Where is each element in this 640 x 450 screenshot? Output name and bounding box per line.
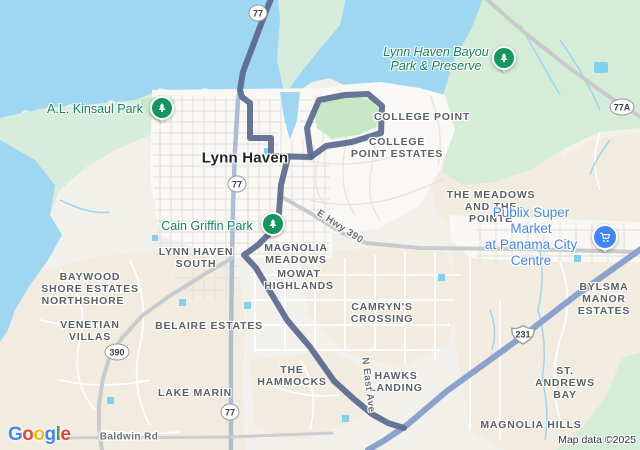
- google-logo[interactable]: Google: [8, 424, 70, 446]
- highway-shield-77: 77: [228, 176, 247, 193]
- map-canvas[interactable]: Lynn Haven COLLEGE POINT COLLEGE POINT E…: [0, 0, 640, 450]
- highway-shield-390: 390: [105, 344, 130, 361]
- poi-marker-publix[interactable]: [592, 224, 618, 250]
- map-artwork: [0, 0, 640, 450]
- highway-shield-77: 77: [221, 404, 240, 421]
- google-logo-letter: g: [45, 424, 56, 445]
- park-tree-icon: [498, 52, 510, 64]
- park-marker-kinsaul[interactable]: [150, 96, 174, 120]
- map-attribution: Map data ©2025: [558, 434, 636, 446]
- park-tree-icon: [267, 218, 279, 230]
- park-marker-cain-griffin[interactable]: [261, 212, 285, 236]
- svg-text:231: 231: [515, 330, 530, 340]
- google-logo-letter: e: [60, 424, 70, 445]
- google-logo-letter: o: [33, 424, 44, 445]
- highway-shield-77a: 77A: [610, 99, 635, 116]
- google-logo-letter: o: [22, 424, 33, 445]
- park-tree-icon: [156, 102, 168, 114]
- park-marker-bayou-preserve[interactable]: [492, 46, 516, 70]
- highway-shield-77: 77: [249, 5, 268, 22]
- highway-shield-us-231: 231: [510, 324, 536, 346]
- shopping-cart-icon: [599, 231, 612, 244]
- google-logo-letter: G: [8, 424, 22, 445]
